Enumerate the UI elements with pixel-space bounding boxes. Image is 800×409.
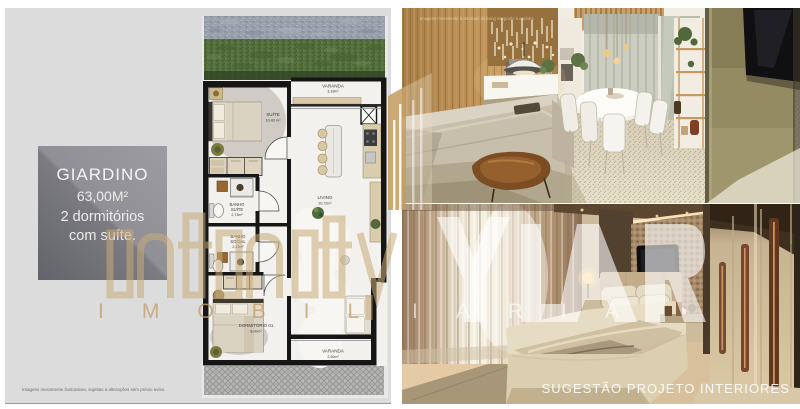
svg-text:IÁRIA: IÁRIA: [412, 300, 657, 323]
svg-text:IMOBIL: IMOBIL: [98, 300, 397, 323]
